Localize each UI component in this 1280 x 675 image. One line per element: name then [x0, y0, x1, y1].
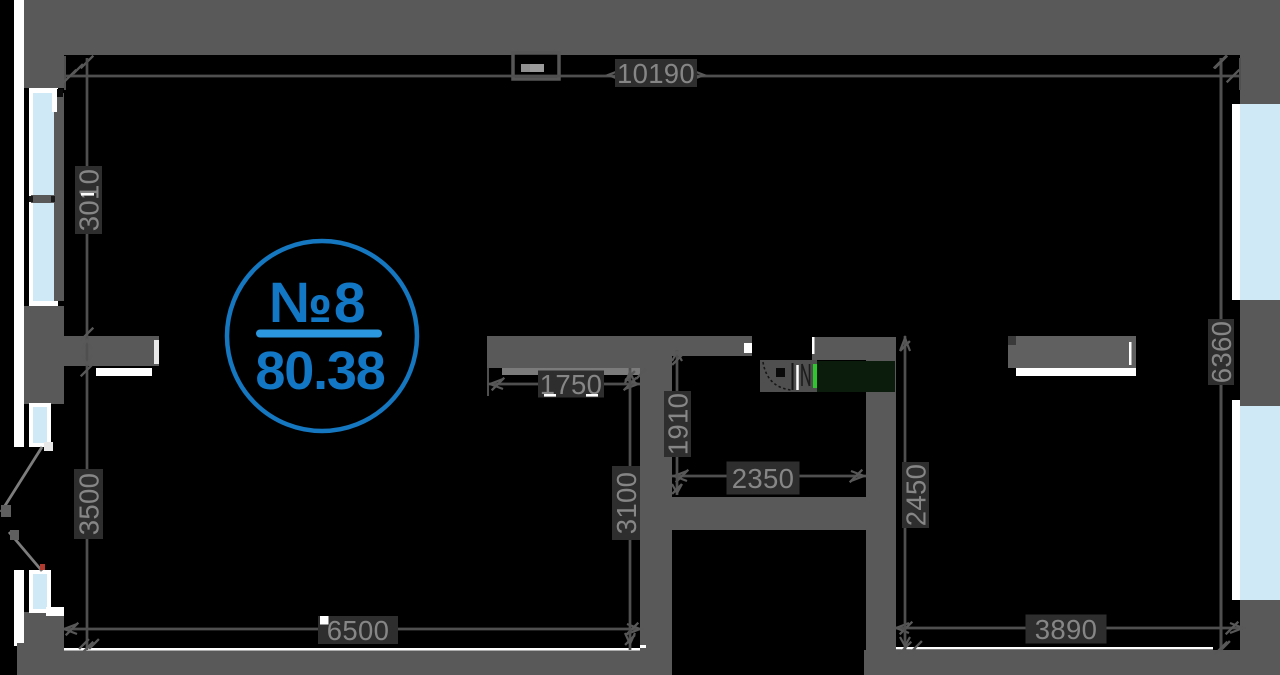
- svg-text:80.38: 80.38: [255, 341, 384, 401]
- svg-text:2350: 2350: [732, 463, 794, 494]
- svg-text:3500: 3500: [74, 473, 105, 535]
- svg-text:6500: 6500: [327, 615, 389, 646]
- svg-text:№8: №8: [269, 271, 367, 335]
- svg-text:10190: 10190: [617, 58, 695, 89]
- svg-text:3010: 3010: [74, 169, 105, 231]
- svg-text:6360: 6360: [1206, 321, 1237, 383]
- svg-text:1910: 1910: [663, 393, 694, 455]
- svg-text:2450: 2450: [901, 464, 932, 526]
- svg-text:3100: 3100: [611, 472, 642, 534]
- svg-text:3890: 3890: [1035, 614, 1097, 645]
